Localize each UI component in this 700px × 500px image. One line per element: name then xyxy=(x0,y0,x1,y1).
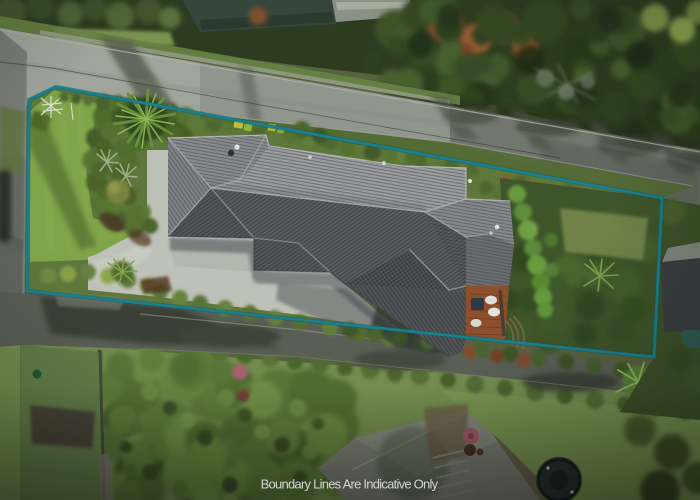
svg-text:Boundary Lines Are Indicative: Boundary Lines Are Indicative Only xyxy=(261,477,439,492)
